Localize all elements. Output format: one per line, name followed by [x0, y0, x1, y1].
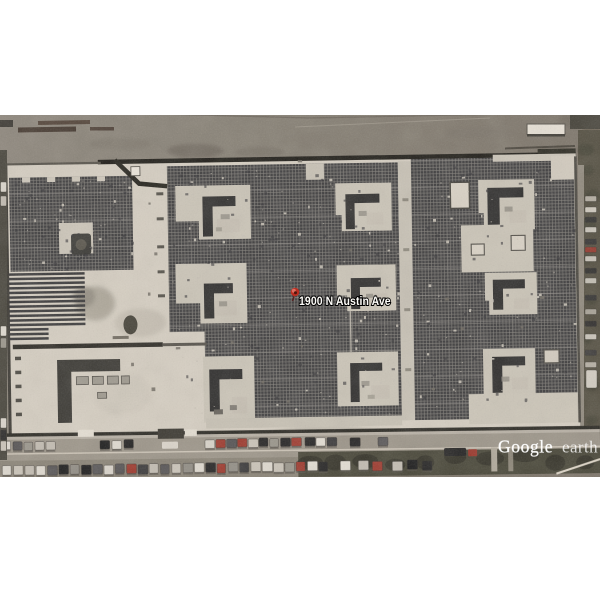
svg-text:earth: earth — [562, 438, 598, 457]
svg-text:1900 N Austin Ave: 1900 N Austin Ave — [299, 295, 391, 308]
svg-text:Google: Google — [498, 437, 553, 457]
